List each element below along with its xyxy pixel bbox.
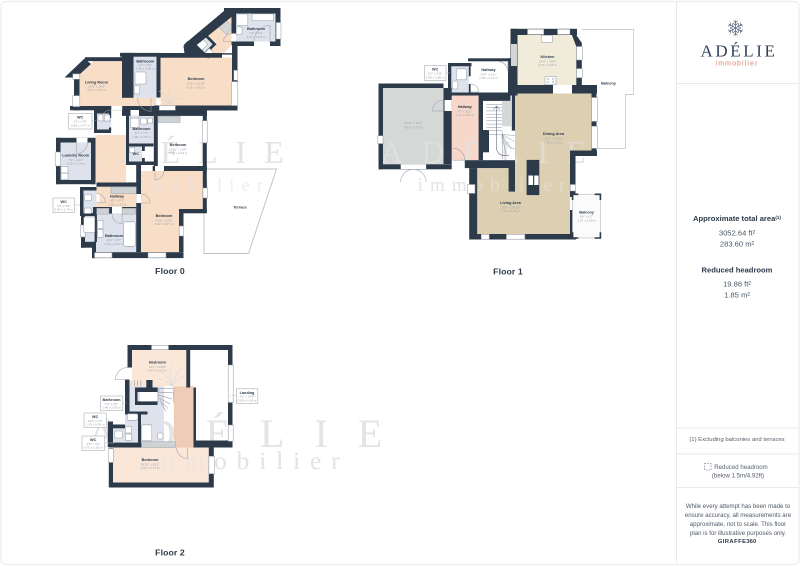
svg-text:immobilier: immobilier [716,60,759,67]
svg-text:2.19 x 3.14 m: 2.19 x 3.14 m [66,162,85,166]
svg-text:7.24 x 4.85 m: 7.24 x 4.85 m [501,209,520,213]
svg-text:2.14 x 3.02 m: 2.14 x 3.02 m [455,113,474,117]
svg-text:Approximate total area(1): Approximate total area(1) [693,214,781,223]
svg-text:6.27 x 3.62 m: 6.27 x 3.62 m [187,85,206,89]
svg-text:4.00 x 2.62 m: 4.00 x 2.62 m [105,242,124,246]
svg-text:immobilier: immobilier [138,448,349,475]
svg-text:1.19 x 0.76 m: 1.19 x 0.76 m [86,423,105,427]
svg-text:7.27 x 2.73 m: 7.27 x 2.73 m [141,466,160,470]
svg-text:0.96 x 1.47 m: 0.96 x 1.47 m [71,123,90,127]
svg-text:1.97 x 2.00 m: 1.97 x 2.00 m [577,218,596,222]
svg-text:1.46 x 2.85 m: 1.46 x 2.85 m [102,406,121,410]
svg-text:WC: WC [133,152,140,156]
svg-text:0.96 x 1.74 m: 0.96 x 1.74 m [54,208,73,212]
svg-text:Terrace: Terrace [233,206,246,210]
svg-text:1.28 x 2.88 m: 1.28 x 2.88 m [136,67,155,71]
svg-text:plan is for illustrative purpo: plan is for illustrative purposes only. [690,530,786,537]
svg-text:4.57 x 5.37 m: 4.57 x 5.37 m [404,125,423,129]
svg-text:4.47 x 2.72 m: 4.47 x 2.72 m [148,369,167,373]
svg-text:While every attempt has been m: While every attempt has been made to [686,503,791,510]
svg-text:ADÉLIE: ADÉLIE [78,134,302,170]
svg-text:Dining Area: Dining Area [543,132,565,136]
svg-text:approximate, not to scale. Thi: approximate, not to scale. This floor [690,521,786,528]
svg-text:ensure accuracy, all measureme: ensure accuracy, all measurements are [685,512,792,519]
svg-text:0.93 x 4.18 m: 0.93 x 4.18 m [238,398,257,402]
svg-text:3.34 x 3.43 m: 3.34 x 3.43 m [169,151,188,155]
svg-text:283.60 m²: 283.60 m² [720,240,755,249]
svg-text:4.37 x 3.96 m: 4.37 x 3.96 m [538,63,557,67]
svg-text:0.99 x 1.80 m: 0.99 x 1.80 m [426,75,445,79]
svg-text:Floor 2: Floor 2 [155,548,185,558]
svg-text:1.86 x 2.25 m: 1.86 x 2.25 m [132,135,151,139]
svg-text:Bedroom: Bedroom [188,77,205,81]
svg-text:3.97 x 3.51 m: 3.97 x 3.51 m [87,88,106,92]
svg-text:Floor 1: Floor 1 [493,266,523,276]
svg-text:3.30 x 2.12 m: 3.30 x 2.12 m [479,76,498,80]
svg-text:0.75 x 1.30 m: 0.75 x 1.30 m [84,446,103,450]
svg-text:2.37 x 2.53 m: 2.37 x 2.53 m [247,35,266,39]
svg-text:GIRAFFE360: GIRAFFE360 [718,539,757,545]
svg-text:5.06 x 7.29 m: 5.06 x 7.29 m [544,140,563,144]
svg-text:Reduced headroom: Reduced headroom [702,266,773,275]
svg-text:immobilier: immobilier [418,175,572,196]
svg-text:ADÉLIE: ADÉLIE [701,42,778,61]
svg-text:1.85 m²: 1.85 m² [724,291,750,300]
svg-text:2.96 x 1.53 m: 2.96 x 1.53 m [108,202,127,206]
svg-text:3.02 x 4.97 m: 3.02 x 4.97 m [155,222,174,226]
svg-text:Balcony: Balcony [601,82,617,86]
svg-text:(1) Excluding balconies and te: (1) Excluding balconies and terraces [689,437,784,443]
svg-text:19.86 ft²: 19.86 ft² [723,280,751,289]
svg-text:Reduced headroom: Reduced headroom [714,464,768,471]
svg-text:Floor 0: Floor 0 [155,266,185,276]
svg-text:3052.64 ft²: 3052.64 ft² [719,229,756,238]
svg-text:(below 1.5m/4.92ft): (below 1.5m/4.92ft) [712,473,764,480]
